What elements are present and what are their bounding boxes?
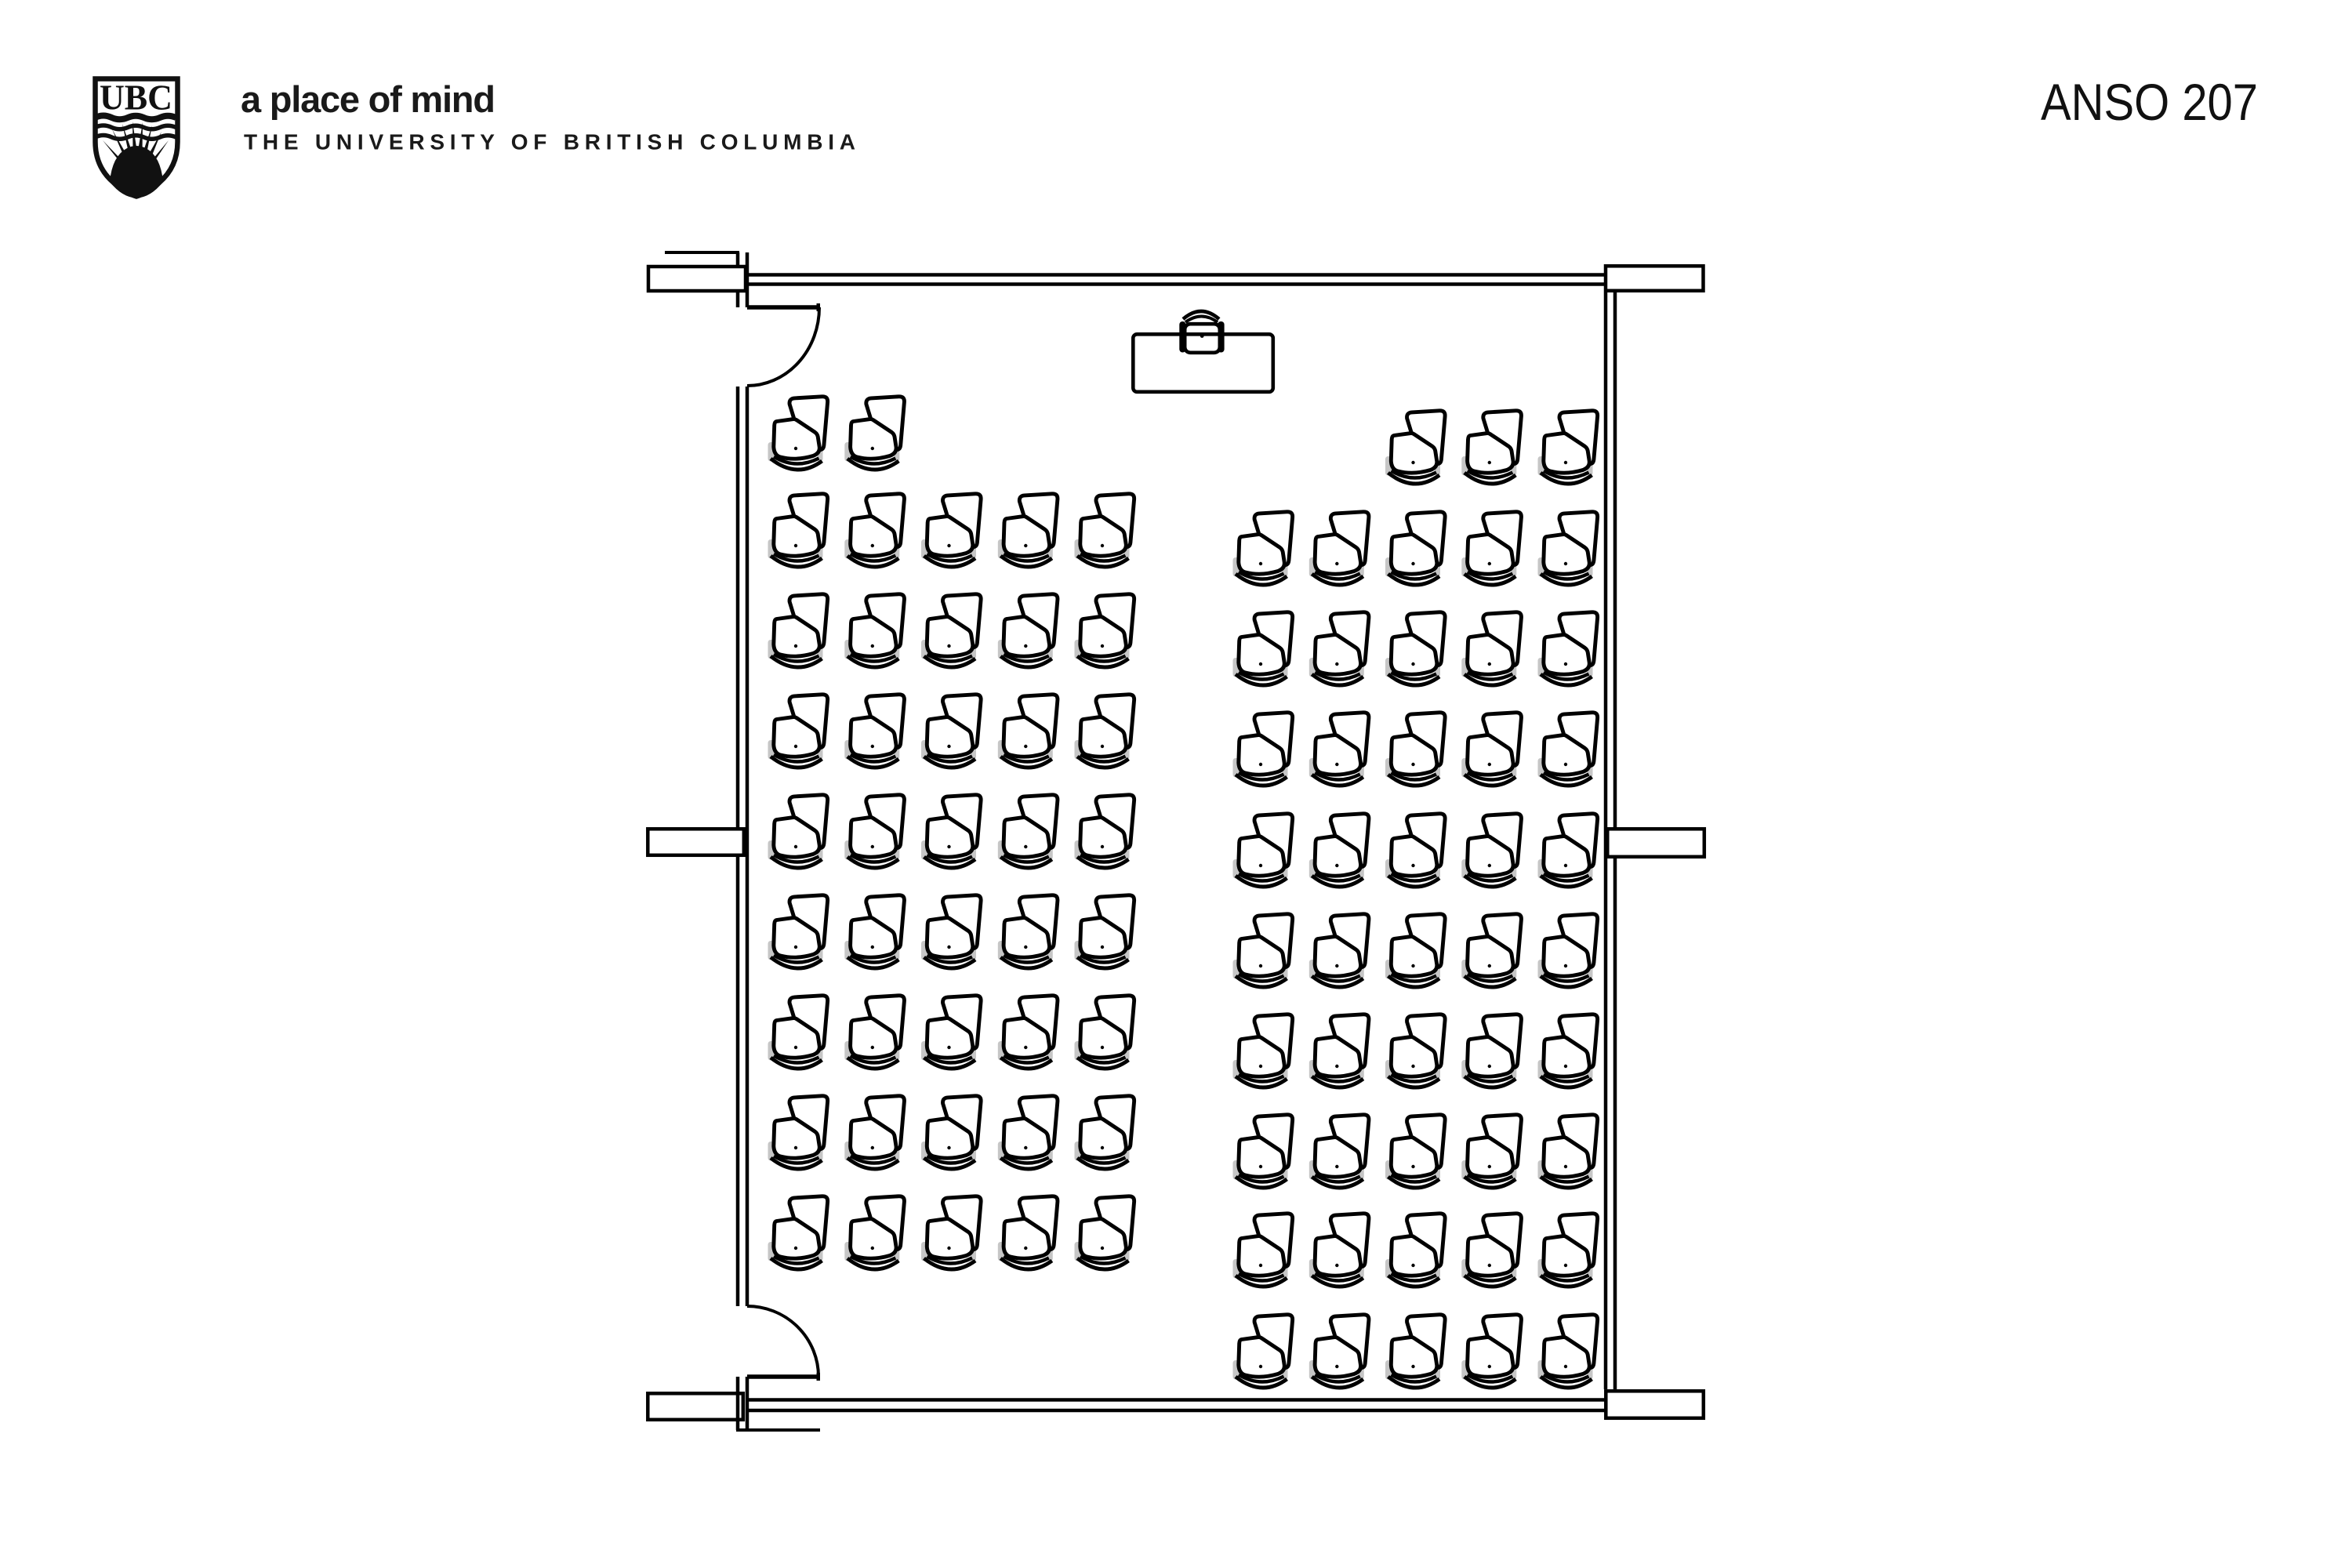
svg-text:a place of mind: a place of mind xyxy=(241,78,495,120)
svg-text:THE UNIVERSITY OF BRITISH COLU: THE UNIVERSITY OF BRITISH COLUMBIA xyxy=(244,130,855,154)
svg-text:UBC: UBC xyxy=(100,78,172,118)
svg-text:ANSO 207: ANSO 207 xyxy=(2041,73,2258,131)
